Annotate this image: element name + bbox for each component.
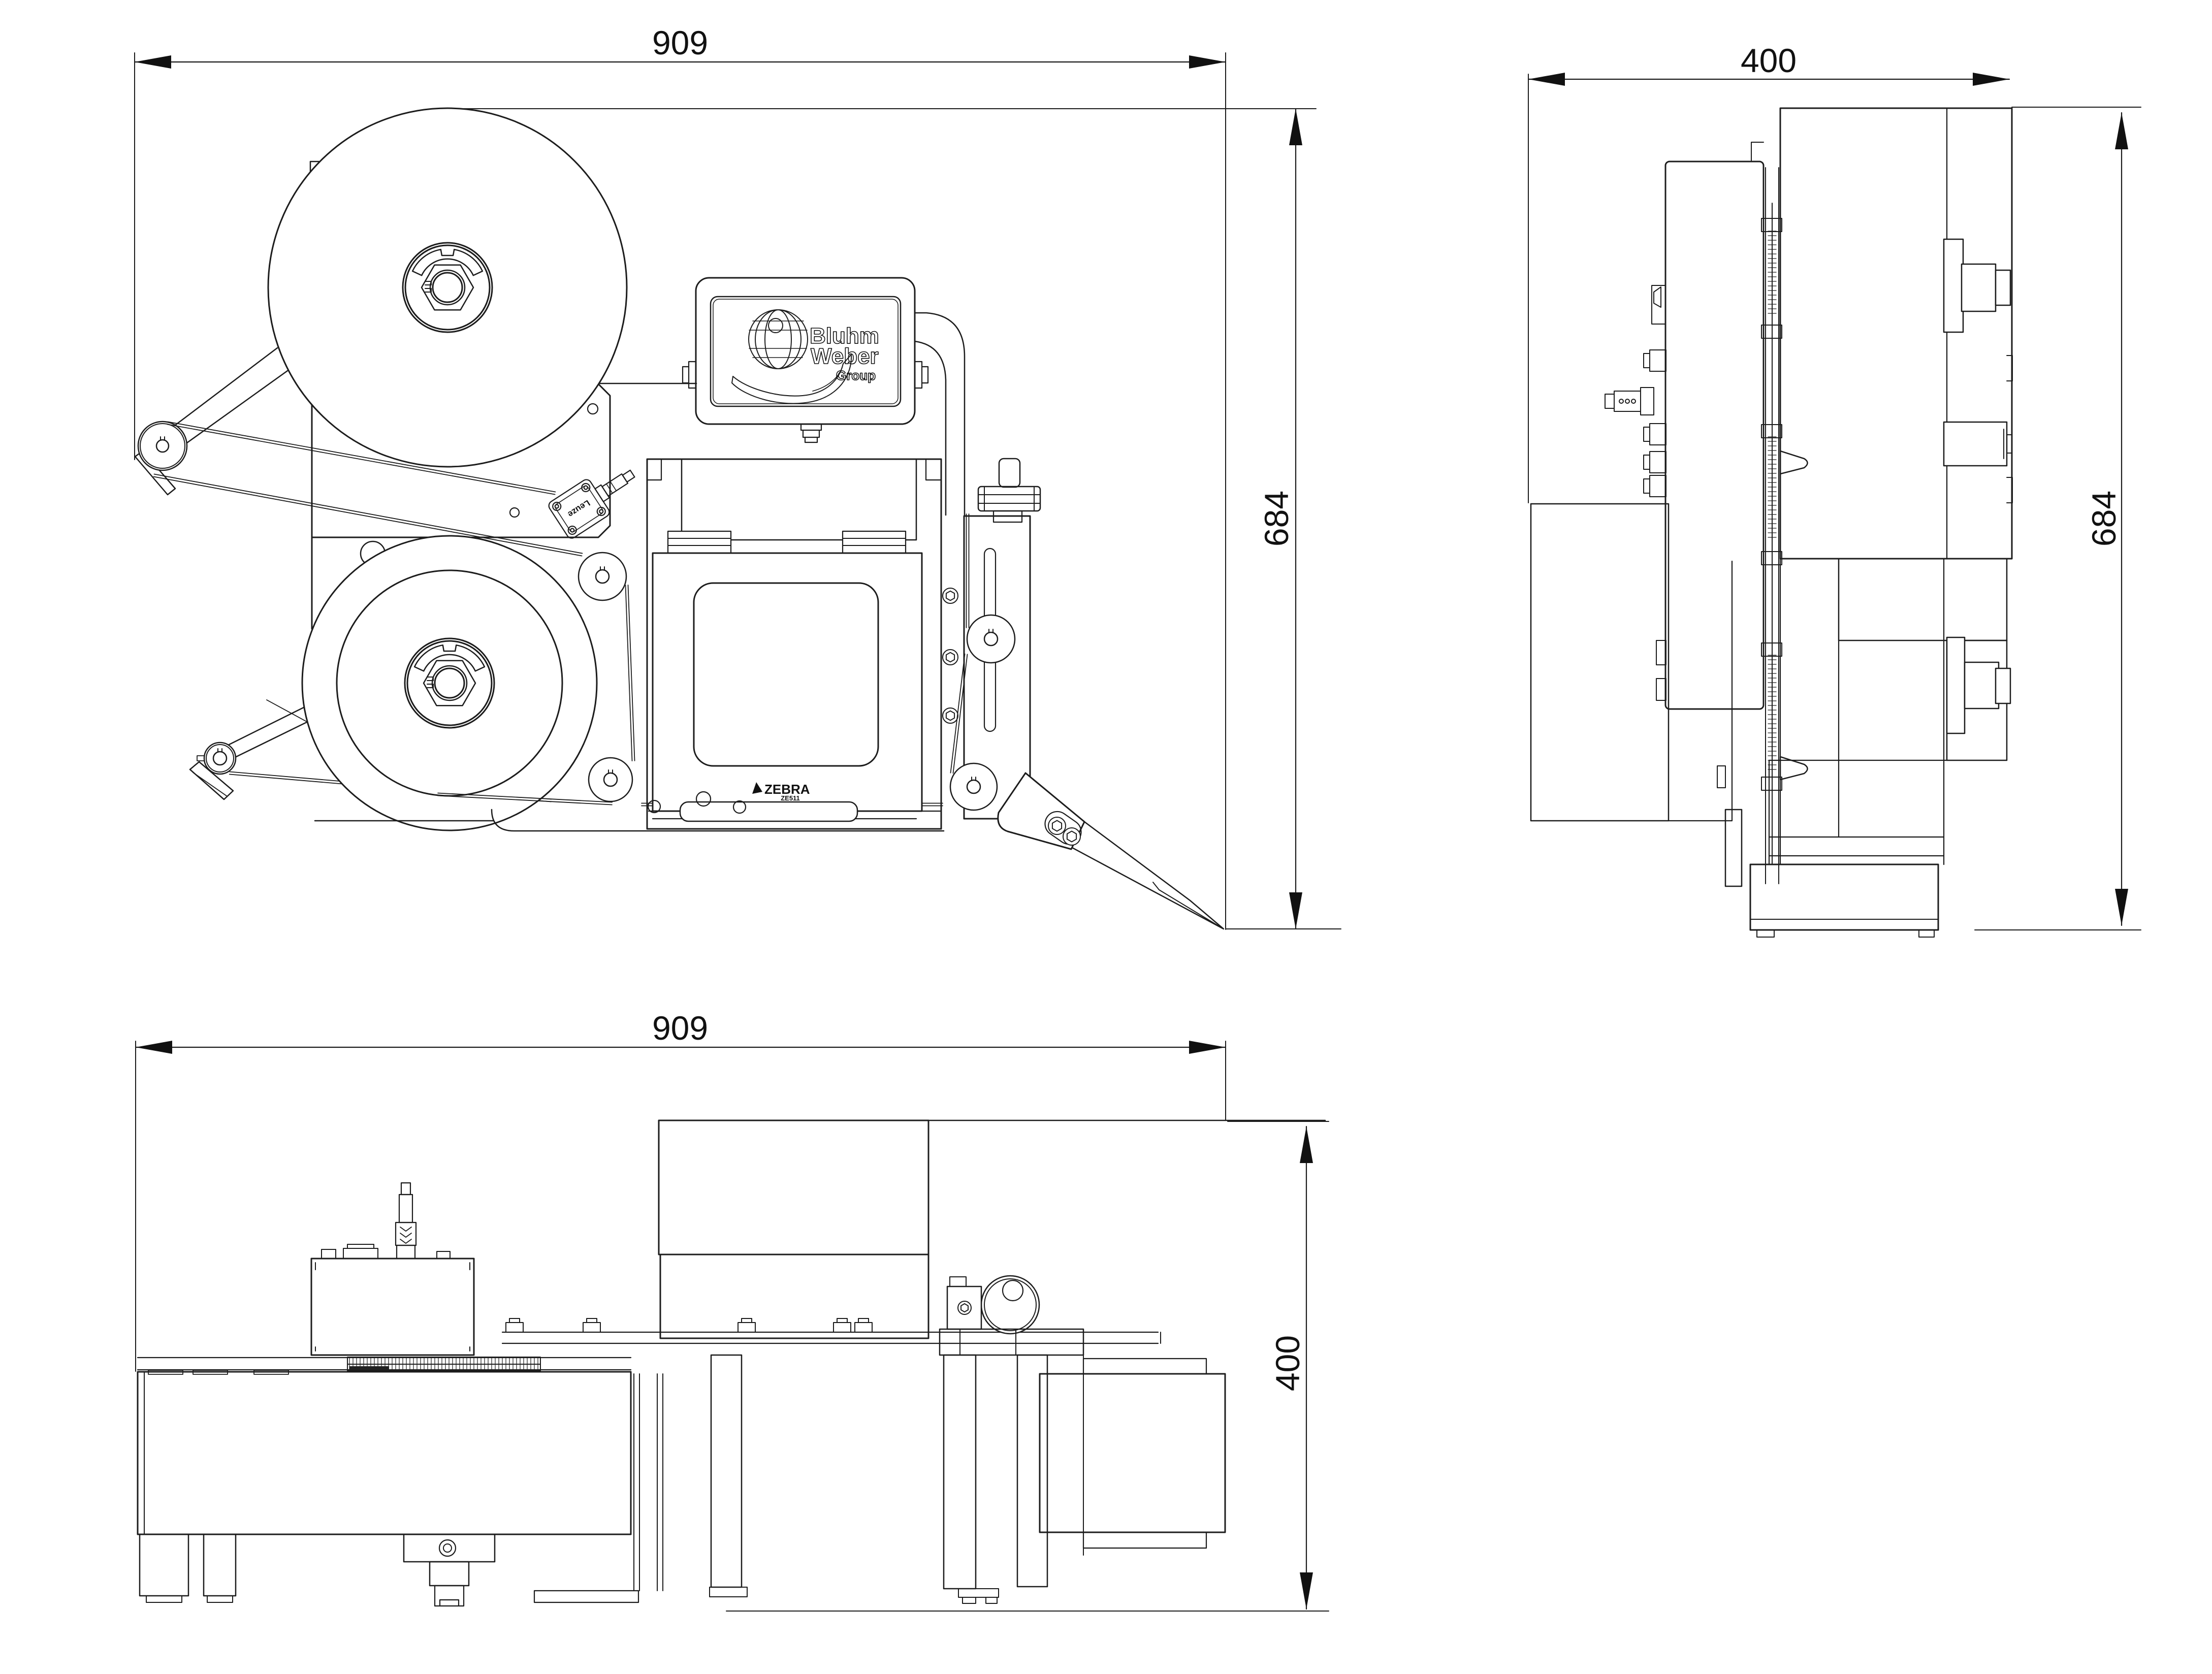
svg-text:Weber: Weber	[811, 344, 879, 369]
svg-text:Group: Group	[836, 368, 876, 383]
svg-text:909: 909	[652, 1009, 708, 1047]
svg-text:ZE511: ZE511	[781, 794, 800, 802]
svg-text:909: 909	[652, 24, 708, 61]
svg-text:684: 684	[1258, 491, 1295, 546]
svg-text:684: 684	[2085, 491, 2123, 546]
svg-text:400: 400	[1269, 1335, 1306, 1391]
svg-text:400: 400	[1741, 42, 1797, 79]
